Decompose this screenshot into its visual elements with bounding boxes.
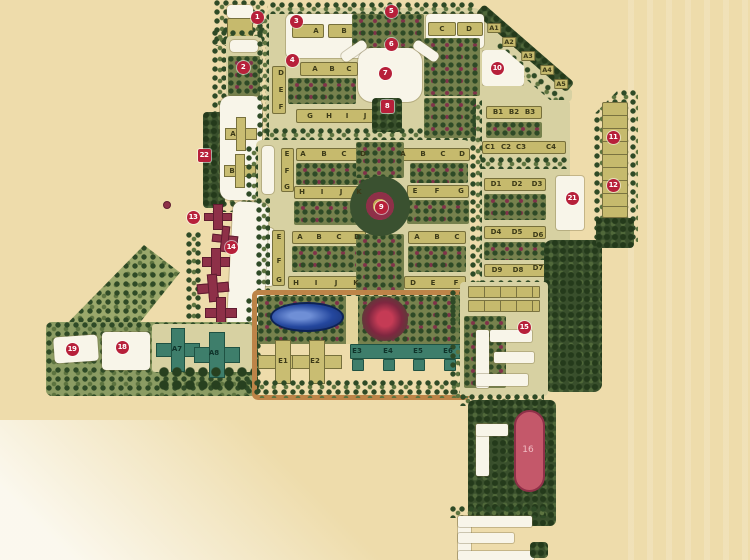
site-marker-8: 8 bbox=[381, 100, 394, 113]
building-label: B bbox=[341, 27, 346, 35]
site-marker-14: 14 bbox=[225, 241, 238, 254]
site-marker-19: 19 bbox=[66, 343, 79, 356]
building-label: B bbox=[229, 167, 234, 175]
building-label: I bbox=[346, 112, 349, 120]
building-label: D bbox=[410, 279, 416, 287]
building-label: A7 bbox=[172, 345, 182, 353]
building-label: A3 bbox=[521, 51, 535, 61]
building-label: A bbox=[300, 150, 305, 158]
building-label: B bbox=[329, 65, 334, 73]
building-label: A bbox=[313, 27, 318, 35]
building-label: D1 bbox=[491, 180, 502, 188]
site-marker-18: 18 bbox=[116, 341, 129, 354]
building-label: C bbox=[336, 233, 341, 241]
building-label: C bbox=[440, 150, 445, 158]
site-marker-5: 5 bbox=[385, 5, 398, 18]
building-label: E bbox=[277, 233, 282, 241]
building-label: H bbox=[293, 279, 299, 287]
building-label: B bbox=[420, 150, 425, 158]
building-label: D5 bbox=[512, 228, 523, 236]
building-label: D bbox=[354, 233, 360, 241]
building-label: 16 bbox=[522, 445, 533, 455]
building-label: G bbox=[458, 187, 464, 195]
building-label: B bbox=[321, 150, 326, 158]
building-label: C1 bbox=[485, 143, 495, 151]
site-plan-scan: 12345678910111213141518192122ABCDABCDEFG… bbox=[0, 0, 750, 560]
building-label: C3 bbox=[516, 143, 526, 151]
building-label: E bbox=[279, 86, 284, 94]
site-marker-22: 22 bbox=[198, 149, 211, 162]
site-marker-3: 3 bbox=[290, 15, 303, 28]
building-label: B bbox=[434, 233, 439, 241]
building-label: A2 bbox=[502, 37, 516, 47]
building-label: G bbox=[276, 276, 282, 284]
building-label: B2 bbox=[509, 108, 519, 116]
building-label: K bbox=[353, 279, 358, 287]
label-layer: 12345678910111213141518192122ABCDABCDEFG… bbox=[0, 0, 750, 560]
building-label: A5 bbox=[554, 79, 568, 89]
building-label: D6 bbox=[533, 231, 544, 239]
site-marker-13: 13 bbox=[187, 211, 200, 224]
building-label: F bbox=[454, 279, 459, 287]
building-label: E bbox=[431, 279, 436, 287]
building-label: E bbox=[413, 187, 418, 195]
building-label: E2 bbox=[310, 357, 320, 365]
building-label: D3 bbox=[532, 180, 543, 188]
building-label: K bbox=[356, 188, 361, 196]
building-label: C bbox=[439, 25, 444, 33]
building-label: E6 bbox=[443, 347, 453, 355]
building-label: D8 bbox=[513, 266, 524, 274]
building-label: D bbox=[466, 25, 472, 33]
building-label: D bbox=[459, 150, 465, 158]
building-label: D7 bbox=[533, 264, 544, 272]
building-label: I bbox=[321, 188, 324, 196]
building-label: F bbox=[435, 187, 440, 195]
building-label: E4 bbox=[383, 347, 393, 355]
site-marker-15: 15 bbox=[518, 321, 531, 334]
building-label: E bbox=[285, 150, 290, 158]
building-label: D4 bbox=[491, 228, 502, 236]
building-label: A bbox=[414, 233, 419, 241]
building-label: C bbox=[346, 65, 351, 73]
building-label: B bbox=[316, 233, 321, 241]
building-label: D bbox=[360, 150, 366, 158]
building-label: A8 bbox=[209, 349, 219, 357]
building-label: A4 bbox=[540, 65, 554, 75]
building-label: D2 bbox=[512, 180, 523, 188]
building-label: C bbox=[341, 150, 346, 158]
site-marker-11: 11 bbox=[607, 131, 620, 144]
building-label: J bbox=[340, 188, 343, 196]
building-label: D9 bbox=[492, 266, 503, 274]
building-label: G bbox=[307, 112, 313, 120]
building-label: J bbox=[335, 279, 338, 287]
building-label: A bbox=[297, 233, 302, 241]
building-label: F bbox=[279, 103, 284, 111]
site-marker-10: 10 bbox=[491, 62, 504, 75]
building-label: E5 bbox=[413, 347, 423, 355]
building-label: C2 bbox=[501, 143, 511, 151]
building-label: E3 bbox=[352, 347, 362, 355]
site-marker-9: 9 bbox=[375, 201, 388, 214]
building-label: H bbox=[326, 112, 332, 120]
building-label: H bbox=[299, 188, 305, 196]
building-label: E1 bbox=[278, 357, 288, 365]
building-label: F bbox=[285, 167, 290, 175]
building-label: B1 bbox=[493, 108, 503, 116]
site-marker-12: 12 bbox=[607, 179, 620, 192]
building-label: B3 bbox=[525, 108, 535, 116]
building-label: C4 bbox=[546, 143, 556, 151]
building-label: A bbox=[312, 65, 317, 73]
building-label: C bbox=[454, 233, 459, 241]
building-label: D bbox=[278, 69, 284, 77]
site-marker-4: 4 bbox=[286, 54, 299, 67]
building-label: J bbox=[364, 112, 367, 120]
site-marker-1: 1 bbox=[251, 11, 264, 24]
site-marker-6: 6 bbox=[385, 38, 398, 51]
building-label: I bbox=[315, 279, 318, 287]
site-marker-7: 7 bbox=[379, 67, 392, 80]
building-label: A bbox=[230, 130, 235, 138]
site-marker-21: 21 bbox=[566, 192, 579, 205]
building-label: G bbox=[284, 183, 290, 191]
building-label: A bbox=[400, 150, 405, 158]
building-label: A1 bbox=[487, 23, 501, 33]
building-label: F bbox=[277, 257, 282, 265]
site-marker-2: 2 bbox=[237, 61, 250, 74]
